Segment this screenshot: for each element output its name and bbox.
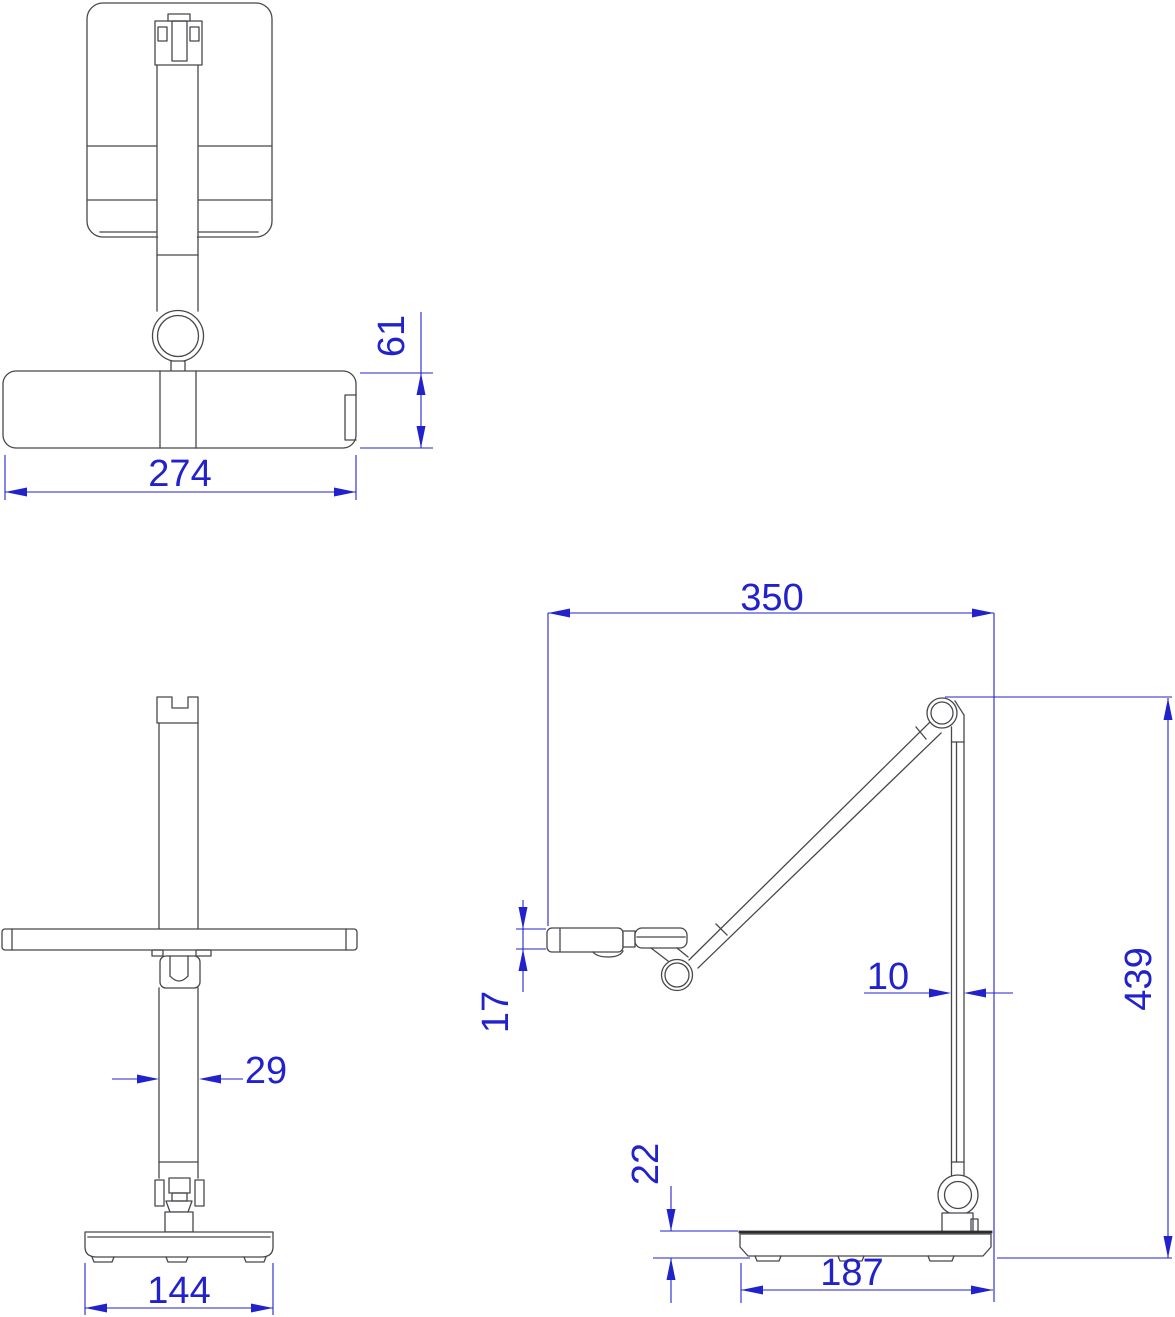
vertical-pole-joint-lines xyxy=(952,742,965,1162)
dimension-61: 61 xyxy=(360,312,433,448)
front-view: 29 144 xyxy=(2,697,357,1315)
head-clamp-front-view xyxy=(157,697,198,723)
dimension-22: 22 xyxy=(625,1143,750,1303)
dimension-274: 274 xyxy=(5,453,356,500)
dim-label-439: 439 xyxy=(1118,947,1160,1010)
dim-label-22: 22 xyxy=(625,1143,667,1185)
dim-label-144: 144 xyxy=(147,1270,210,1312)
base-neck xyxy=(165,1212,193,1232)
base-front-feet xyxy=(92,1257,266,1262)
dim-label-187: 187 xyxy=(820,1252,883,1294)
head-hinge-outer xyxy=(662,960,693,991)
head-fork-lines xyxy=(651,948,688,961)
base-front-outline xyxy=(85,1232,273,1257)
diagonal-arm-joint-lines xyxy=(716,727,926,935)
swivel-joint-outer xyxy=(153,311,204,362)
dim-label-350: 350 xyxy=(740,577,803,619)
head-mount-tab-right xyxy=(196,950,211,956)
head-bracket xyxy=(635,928,687,948)
head-connector xyxy=(623,931,635,947)
dim-label-274: 274 xyxy=(148,453,211,495)
dimension-439: 439 xyxy=(945,697,1173,1258)
lamp-dimension-drawing: 274 61 xyxy=(0,0,1175,1317)
top-view: 274 61 xyxy=(3,3,433,500)
dimension-17: 17 xyxy=(475,900,546,1033)
dim-label-10: 10 xyxy=(867,956,909,998)
upper-pole-edges xyxy=(159,723,198,929)
dimension-10: 10 xyxy=(864,956,1013,998)
head-mount-tab-left xyxy=(152,950,163,956)
drawing-svg: 274 61 xyxy=(0,0,1175,1317)
dim-label-17: 17 xyxy=(475,991,517,1033)
base-mount-block xyxy=(942,1213,973,1232)
dimension-144: 144 xyxy=(85,1263,273,1315)
lamp-head-side xyxy=(547,928,623,952)
dimension-29: 29 xyxy=(112,1050,287,1092)
arm-mask xyxy=(158,65,197,311)
side-view: 350 17 10 439 xyxy=(475,577,1173,1303)
head-hinge-block xyxy=(160,956,200,988)
vertical-pole-edges xyxy=(952,701,965,1178)
base-hinge-front-view xyxy=(155,1178,204,1212)
head-clamp-top-view xyxy=(155,14,202,65)
diagonal-arm-edges xyxy=(689,722,941,968)
lamp-head-bar xyxy=(3,371,356,448)
lamp-head-bar-edge xyxy=(2,929,357,950)
dim-label-61: 61 xyxy=(371,315,413,357)
lower-pole-edges xyxy=(159,988,198,1178)
dimension-187: 187 xyxy=(741,1252,993,1303)
dim-label-29: 29 xyxy=(245,1050,287,1092)
